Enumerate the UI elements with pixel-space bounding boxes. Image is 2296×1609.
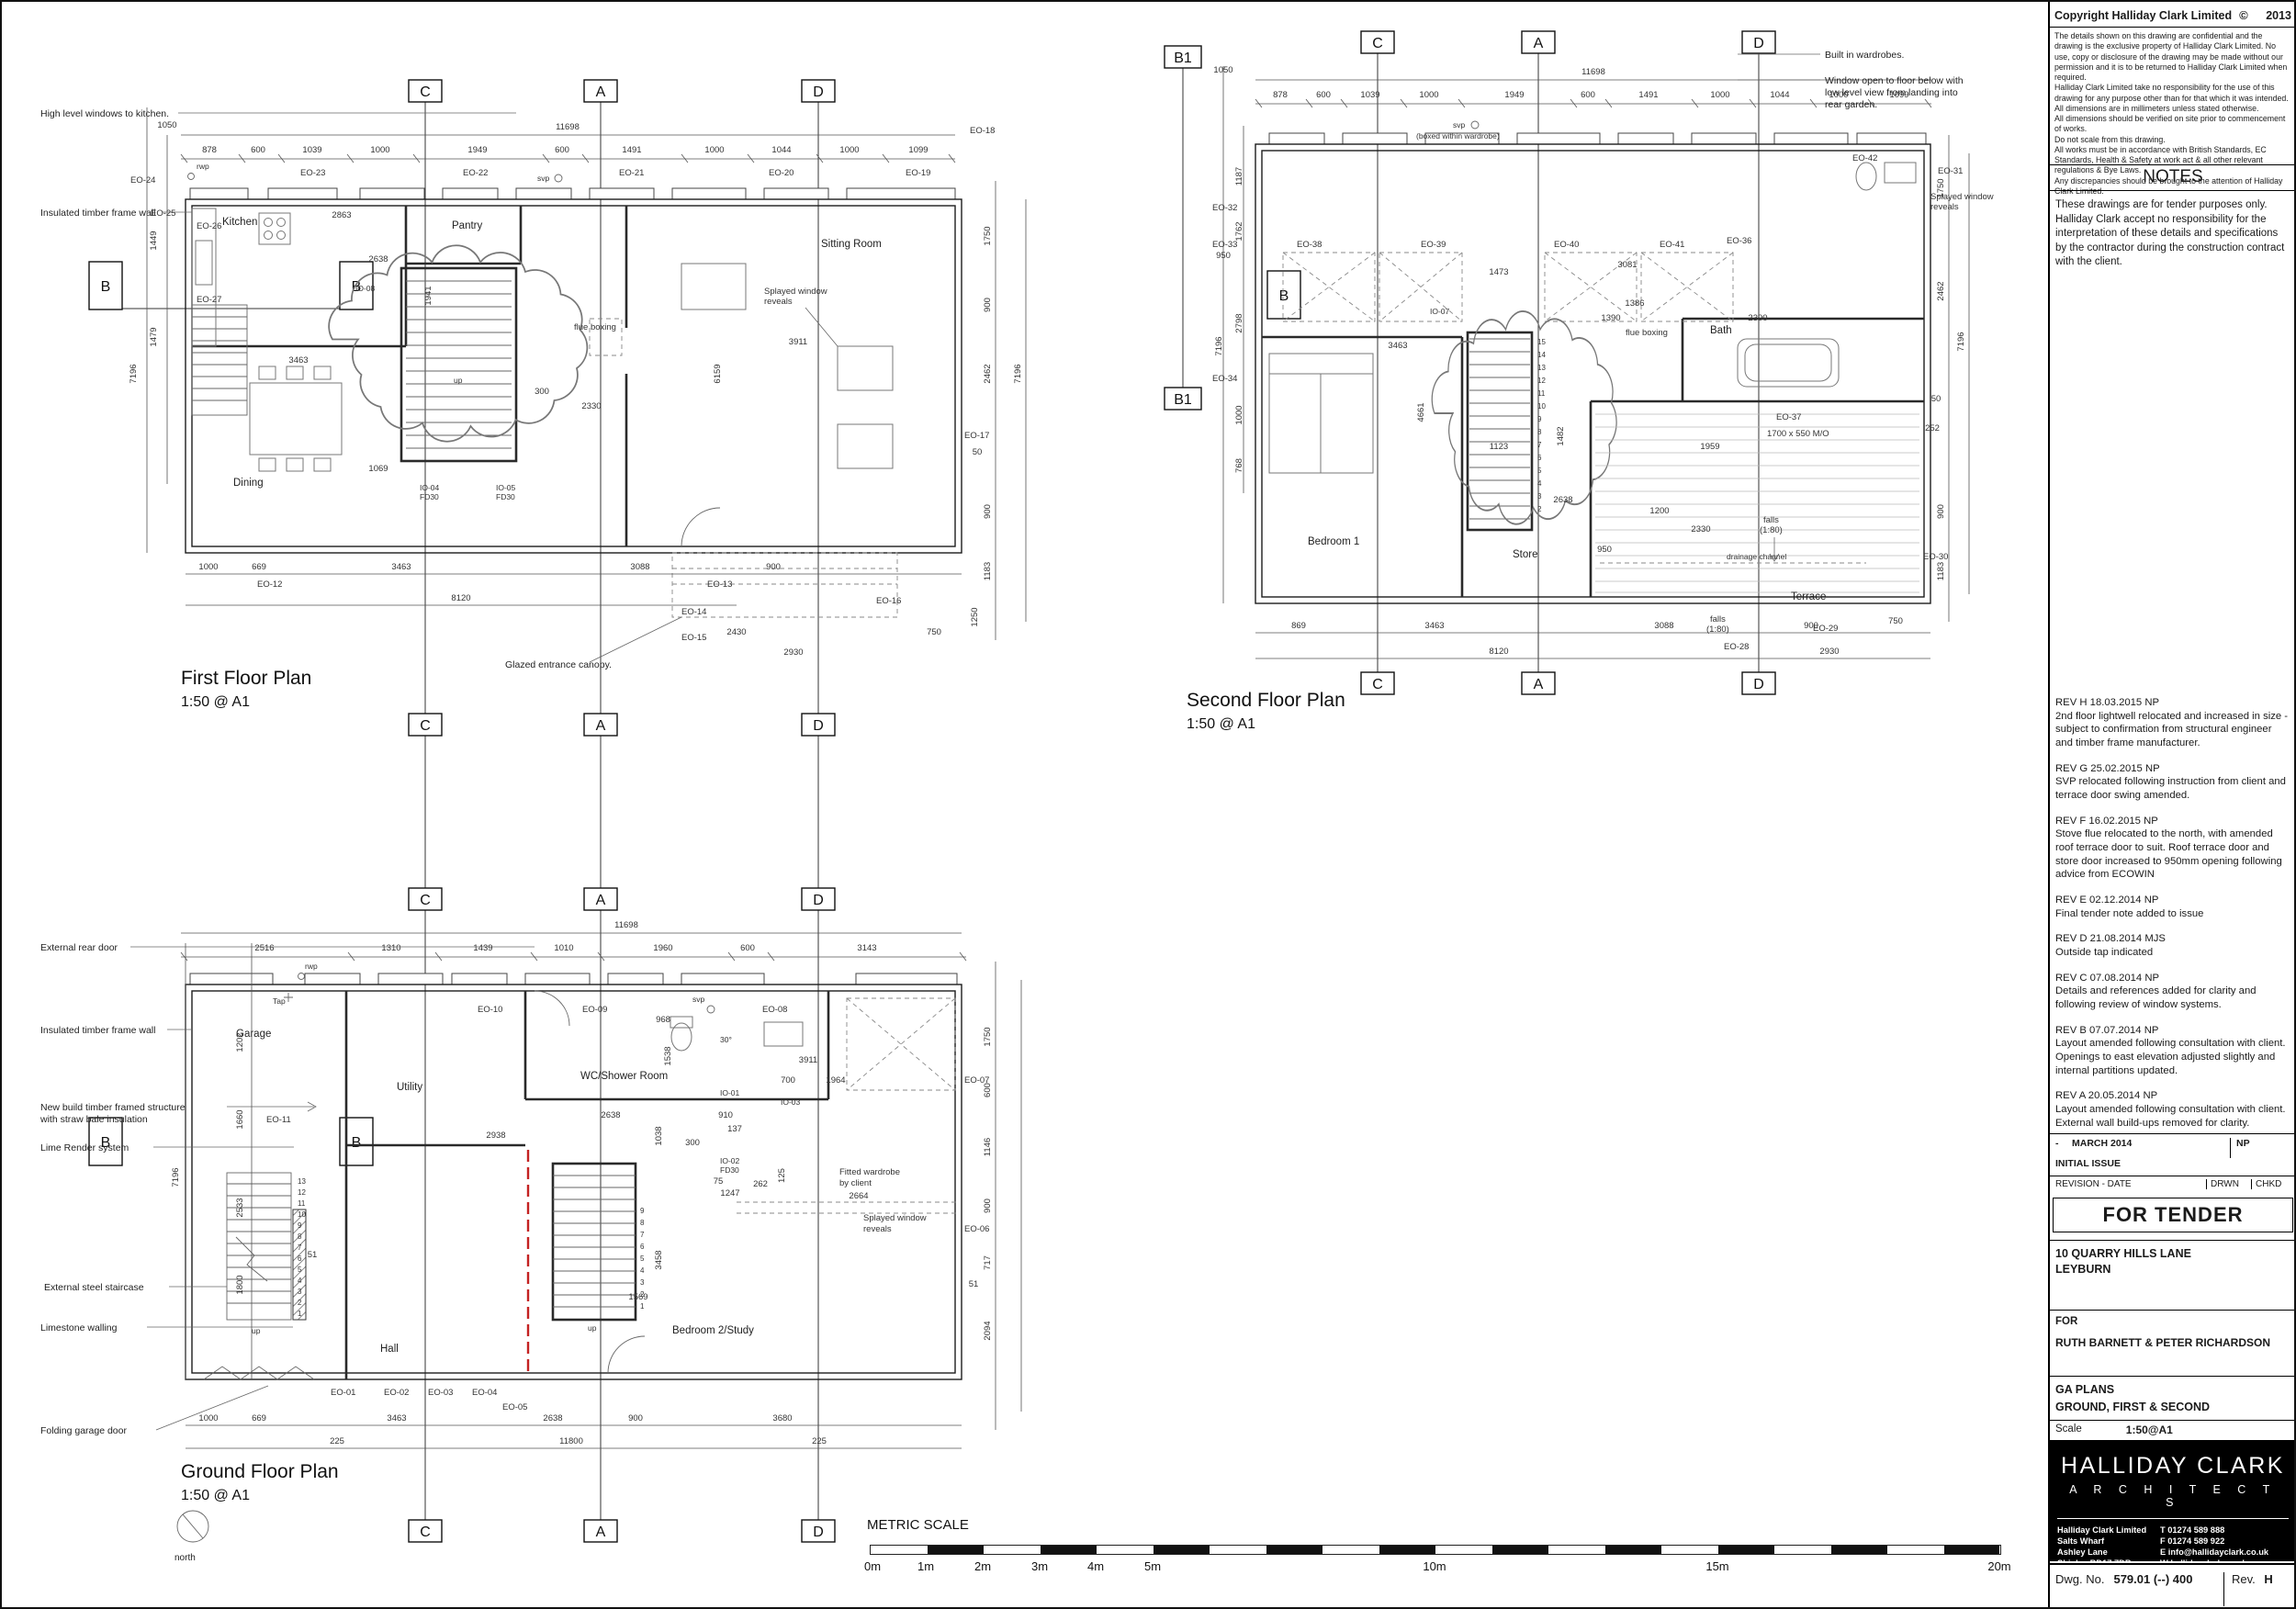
window-ref: EO-04 (472, 1388, 497, 1398)
rwp-label: rwp (197, 162, 209, 171)
stair-number: 3 (298, 1288, 302, 1296)
dim-label: 50 (1931, 394, 1941, 404)
note-flue: flue boxing (1626, 328, 1668, 338)
address-line: Halliday Clark Limited (2057, 1525, 2160, 1536)
dimensions-inner: 3463 2863 2638 1069 300 2330 3911 6159 1… (288, 210, 807, 474)
dimensions-left: 1187 1762 2798 1000 768 7196 EO-32 EO-33… (1212, 66, 1244, 603)
note-splayed: reveals (1930, 202, 1959, 212)
window-ref: EO-11 (266, 1115, 291, 1125)
dim-label: 1482 (1556, 426, 1566, 445)
room-sitting: Sitting Room (821, 239, 882, 250)
dim-label: 1959 (1700, 442, 1719, 452)
dim-label: 1538 (663, 1046, 673, 1065)
marker-d: D (1753, 677, 1764, 692)
note-structure: New build timber framed structure (40, 1102, 186, 1113)
window-ref: EO-16 (876, 596, 901, 606)
stair-number: 11 (298, 1199, 306, 1208)
window-ref: EO-37 (1776, 412, 1801, 422)
door-ref: IO-04 (420, 483, 440, 492)
marker-a: A (596, 893, 606, 908)
note-wardrobes: Built in wardrobes. (1825, 50, 1904, 61)
dim-label: 2930 (783, 647, 803, 658)
scale-label: 5m (1144, 1559, 1161, 1573)
revision-entry: REV B 07.07.2014 NP Layout amended follo… (2055, 1024, 2290, 1078)
issue-table: - MARCH 2014 NP INITIAL ISSUE REVISION -… (2050, 1133, 2296, 1194)
notes-heading: NOTES (2050, 167, 2296, 191)
drawing-sheet: C A D C A D B B 1050 11698 878 600 1039 … (0, 0, 2296, 1609)
dim-label: 968 (656, 1015, 670, 1025)
dim-label: 600 (1581, 90, 1595, 100)
window-ref: EO-36 (1727, 236, 1751, 246)
dim-label: 225 (812, 1436, 827, 1446)
marker-a: A (596, 84, 606, 100)
dim-label: 900 (766, 562, 781, 572)
revision-entry: REV E 02.12.2014 NP Final tender note ad… (2055, 894, 2290, 920)
scale-label: 15m (1705, 1559, 1728, 1573)
dim-label: 1386 (1625, 298, 1644, 309)
scale-row: Scale 1:50@A1 (2050, 1420, 2296, 1436)
up-label: up (454, 376, 463, 385)
stair-number: 6 (298, 1255, 302, 1263)
stair-number: 7 (640, 1231, 645, 1239)
io-refs: IO-01 IO-02 FD30 IO-03 30° (720, 1035, 801, 1175)
window-ref: EO-18 (970, 126, 995, 136)
dim-label: 2516 (254, 943, 274, 953)
dim-label: 1941 (423, 286, 433, 305)
revision-text: Outside tap indicated (2055, 946, 2290, 960)
stair-number: 1 (298, 1310, 302, 1318)
room-kitchen: Kitchen (222, 217, 257, 228)
scale-bar (870, 1545, 2001, 1555)
annotations-left: External rear door Insulated timber fram… (39, 942, 715, 1436)
dim-label: 2094 (983, 1321, 993, 1340)
note-splayed: Splayed window (863, 1213, 927, 1223)
dim-label: 1949 (1504, 90, 1524, 100)
revision-cloud (329, 245, 587, 441)
marker-a: A (596, 1525, 606, 1540)
dim-label: 950 (1216, 251, 1231, 261)
window-ref: EO-25 (151, 208, 175, 219)
stair-number: 5 (1537, 467, 1542, 475)
dim-label: 252 (1925, 423, 1940, 433)
marker-a: A (1534, 677, 1544, 692)
dim-label: 225 (330, 1436, 344, 1446)
section-lines (122, 102, 818, 842)
dim-label: 51 (308, 1250, 318, 1260)
dim-label: 750 (927, 627, 941, 637)
title-block: Copyright Halliday Clark Limited © 2013 … (2048, 2, 2296, 1609)
col-chkd: CHKD (2251, 1179, 2290, 1189)
dim-label: 51 (969, 1279, 979, 1289)
revision-entry: REV H 18.03.2015 NP 2nd floor lightwell … (2055, 696, 2290, 750)
dim-label: 2430 (726, 627, 746, 637)
dim-label: 717 (983, 1255, 993, 1270)
revision-label: REV D 21.08.2014 MJS (2055, 932, 2290, 946)
stair-number: 6 (640, 1243, 645, 1251)
stair-number: 4 (1537, 479, 1542, 488)
dim-label: 3463 (288, 355, 308, 366)
dim-label: 1000 (704, 145, 724, 155)
window-ref: EO-12 (257, 579, 282, 590)
dim-label: 3458 (654, 1250, 664, 1269)
dwg-no-value: 579.01 (--) 400 (2113, 1572, 2192, 1586)
stair-number: 6 (1537, 454, 1542, 462)
window-ref: EO-31 (1938, 166, 1963, 176)
room-terrace: Terrace (1791, 591, 1826, 602)
note-splayed: reveals (863, 1224, 892, 1234)
issue-dash: - (2055, 1138, 2072, 1158)
dim-label: 3463 (391, 562, 411, 572)
marker-b1: B1 (1174, 51, 1192, 66)
copyright-paragraph: All dimensions should be verified on sit… (2054, 114, 2291, 135)
plan-scale-ground: 1:50 @ A1 (181, 1488, 250, 1503)
svp-label: svp (692, 995, 705, 1004)
dim-label: 768 (1234, 458, 1244, 473)
dim-label: 11698 (1581, 67, 1605, 77)
note-falls: falls (1763, 515, 1779, 525)
walls (186, 199, 962, 617)
window-ref: EO-30 (1923, 552, 1948, 562)
stair-number: 9 (640, 1207, 645, 1215)
dim-label: 2938 (486, 1131, 505, 1141)
windows-top (190, 973, 957, 985)
project-line1: 10 QUARRY HILLS LANE (2055, 1246, 2290, 1262)
dim-label: 1044 (771, 145, 791, 155)
revision-label: REV E 02.12.2014 NP (2055, 894, 2290, 907)
dim-label: 1439 (473, 943, 492, 953)
note-garage-door: Folding garage door (40, 1425, 127, 1436)
stair-number: 11 (1537, 389, 1546, 398)
dim-label: 1762 (1234, 221, 1244, 241)
room-labels: Garage Utility WC/Shower Room Hall Bedro… (236, 1029, 927, 1355)
room-hall: Hall (380, 1344, 399, 1355)
revision-history: REV H 18.03.2015 NP 2nd floor lightwell … (2050, 696, 2296, 1142)
stair-number: 4 (640, 1266, 645, 1275)
plan-title-first: First Floor Plan (181, 668, 311, 689)
note-falls: (1:80) (1760, 525, 1783, 535)
dim-label: 1069 (368, 464, 388, 474)
dim-label: 4661 (1416, 402, 1426, 422)
dwg-no-label: Dwg. No. (2050, 1572, 2104, 1586)
dim-label: 2300 (1748, 313, 1767, 323)
window-ref: EO-32 (1212, 203, 1237, 213)
scale-label: Scale (2055, 1423, 2082, 1434)
dimensions-bottom: 1000 669 3463 3088 900 8120 2430 2930 EO… (186, 562, 962, 658)
section-markers: C A D C A D B B (89, 888, 835, 1542)
room-labels: Kitchen Pantry Sitting Room Dining (222, 217, 882, 489)
windows-top (1269, 133, 1926, 144)
for-label: FOR (2055, 1316, 2290, 1327)
window-ref: EO-42 (1852, 153, 1877, 163)
stair-number: 10 (1537, 402, 1546, 411)
dim-label: 900 (1936, 504, 1946, 519)
note-window: Window open to floor below with (1825, 75, 1964, 86)
note-splayed: Splayed window (764, 287, 827, 297)
note-structure: with straw bale insulation (39, 1114, 148, 1125)
dim-label: 1010 (554, 943, 573, 953)
copyright-title: Copyright Halliday Clark Limited (2054, 9, 2232, 22)
address-line: Ashley Lane (2057, 1547, 2160, 1558)
dim-label: 50 (973, 447, 983, 457)
marker-b1: B1 (1174, 392, 1192, 408)
revision-label: REV G 25.02.2015 NP (2055, 762, 2290, 776)
dim-label: 2863 (332, 210, 351, 220)
dim-label: 1000 (198, 562, 218, 572)
copyright-paragraph: Halliday Clark Limited take no responsib… (2054, 83, 2291, 104)
dim-label: 2930 (1819, 647, 1839, 657)
room-dining: Dining (233, 478, 264, 489)
dim-label: 1123 (1490, 442, 1508, 452)
marker-d: D (1753, 36, 1764, 51)
dim-label: 2638 (1553, 495, 1572, 505)
stair-number: 9 (298, 1221, 302, 1230)
client-name: RUTH BARNETT & PETER RICHARDSON (2055, 1336, 2290, 1349)
dim-label: 7196 (1013, 364, 1023, 383)
dim-label: 1000 (1710, 90, 1729, 100)
scale-label: 2m (974, 1559, 991, 1573)
dim-label: 910 (718, 1110, 733, 1120)
dim-label: 1750 (983, 1027, 993, 1046)
contact-line: F 01274 589 922 (2160, 1536, 2268, 1547)
dim-label: 1250 (970, 607, 980, 626)
window-ref: EO-13 (707, 579, 732, 590)
dim-label: 900 (1804, 621, 1818, 631)
client-block: FOR RUTH BARNETT & PETER RICHARDSON (2050, 1310, 2296, 1365)
dim-label: 125 (777, 1168, 787, 1183)
note-drainage: drainage channel (1727, 552, 1786, 561)
stair-number: 2 (298, 1299, 302, 1307)
scale-value: 1:50@A1 (2126, 1423, 2173, 1434)
dimensions-left: 1449 1479 7196 EO-24 EO-25 EO-26 EO-27 (129, 107, 221, 553)
plan-title-second: Second Floor Plan (1187, 690, 1345, 711)
stairs-internal: 9 8 7 6 5 4 3 2 1 up (553, 1176, 645, 1333)
dim-label: 1183 (983, 562, 993, 580)
dim-label: 1964 (826, 1075, 845, 1086)
dim-label: 1750 (983, 226, 993, 245)
svp-label: svp (1453, 120, 1466, 129)
window-ref: EO-01 (331, 1388, 355, 1398)
marker-c: C (420, 718, 431, 734)
marker-c: C (420, 84, 431, 100)
note-canopy: Glazed entrance canopy. (505, 659, 612, 670)
note-wardrobe: Fitted wardrobe (839, 1167, 900, 1177)
plan-scale-second: 1:50 @ A1 (1187, 716, 1255, 732)
dim-label: 2533 (235, 1198, 245, 1217)
dim-label: 1050 (157, 120, 176, 130)
col-drwn: DRWN (2206, 1179, 2247, 1189)
dim-label: 2638 (601, 1110, 620, 1120)
dim-label: 1491 (1638, 90, 1658, 100)
room-bedroom1: Bedroom 1 (1308, 536, 1359, 547)
scale-label: 20m (1987, 1559, 2010, 1573)
dim-label: 750 (1888, 616, 1903, 626)
marker-a: A (596, 718, 606, 734)
dim-label: 8120 (1489, 647, 1508, 657)
dim-label: 3463 (1388, 341, 1407, 351)
second-floor-plan: B1 B1 C A D C A D B 1050 11698 878 600 1… (1131, 16, 2059, 750)
scale-label: 3m (1031, 1559, 1048, 1573)
drawing-title1: GA PLANS (2055, 1381, 2290, 1399)
revision-text: SVP relocated following instruction from… (2055, 775, 2290, 802)
dimensions-right: 1750 900 2462 7196 50 900 1183 1250 750 … (927, 126, 1026, 640)
note-mo: 1700 x 550 M/O (1767, 429, 1829, 439)
dim-label: 1473 (1489, 267, 1508, 277)
dim-label: 3088 (630, 562, 649, 572)
window-ref: EO-15 (681, 633, 706, 643)
marker-c: C (420, 1525, 431, 1540)
dim-label: 878 (202, 145, 217, 155)
copyright-body: The details shown on this drawing are co… (2050, 29, 2296, 165)
dim-label: 878 (1273, 90, 1288, 100)
revision-label: REV C 07.08.2014 NP (2055, 972, 2290, 985)
dim-label: 1044 (1770, 90, 1789, 100)
section-markers: C A D C A D B B (89, 80, 835, 736)
fixtures (670, 1017, 803, 1051)
dim-label: 1000 (198, 1413, 218, 1423)
plan-title-ground: Ground Floor Plan (181, 1461, 339, 1482)
window-ref: EO-09 (582, 1005, 607, 1015)
window-ref: EO-39 (1421, 240, 1446, 250)
revision-entry: REV G 25.02.2015 NP SVP relocated follow… (2055, 762, 2290, 803)
dim-label: 3081 (1617, 260, 1637, 270)
dim-label: 1960 (653, 943, 672, 953)
door-ref: IO-03 (781, 1097, 801, 1107)
dim-label: 669 (252, 1413, 266, 1423)
dim-label: 3680 (772, 1413, 792, 1423)
room-bedroom2: Bedroom 2/Study (672, 1325, 754, 1336)
note-falls: falls (1710, 614, 1726, 624)
note-high-windows: High level windows to kitchen. (40, 108, 169, 119)
issue-drawn: NP (2230, 1138, 2290, 1158)
window-ref: EO-17 (964, 431, 989, 441)
window-ref: EO-33 (1212, 240, 1237, 250)
stair-number: 5 (640, 1255, 645, 1263)
door-ref: FD30 (420, 492, 439, 501)
dim-label: 1200 (1649, 506, 1669, 516)
notes-body: These drawings are for tender purposes o… (2050, 195, 2296, 274)
rwp-label: rwp (305, 962, 318, 971)
note-ext-staircase: External steel staircase (44, 1282, 144, 1293)
note-rear-door: External rear door (40, 942, 118, 953)
window-ref: EO-20 (769, 168, 793, 178)
up-label: up (588, 1323, 597, 1333)
up-label: up (252, 1326, 261, 1335)
window-ref: EO-07 (964, 1075, 989, 1086)
stair-number: 1 (640, 1302, 645, 1311)
angle-label: 30° (720, 1035, 732, 1044)
revision-text: Layout amended following consultation wi… (2055, 1037, 2290, 1077)
logo-name: HALLIDAY CLARK (2057, 1453, 2289, 1480)
metric-scale-title: METRIC SCALE (867, 1517, 969, 1533)
rev-value: H (2264, 1572, 2272, 1586)
door-ref: FD30 (496, 492, 515, 501)
window-ref: EO-21 (619, 168, 644, 178)
dim-label: 3911 (799, 1055, 817, 1065)
stair-number: 4 (298, 1277, 302, 1285)
dim-label: 2798 (1234, 313, 1244, 332)
window-ref: EO-02 (384, 1388, 409, 1398)
door-ref: IO-05 (496, 483, 516, 492)
project-address: 10 QUARRY HILLS LANE LEYBURN (2050, 1240, 2296, 1299)
window-ref: EO-34 (1212, 374, 1237, 384)
project-line2: LEYBURN (2055, 1262, 2290, 1277)
north-label: north (174, 1553, 196, 1563)
dim-label: 1202 (235, 1032, 245, 1052)
scale-label: 4m (1087, 1559, 1104, 1573)
stair-number: 2 (1537, 505, 1542, 513)
revision-text: Layout amended following consultation wi… (2055, 1103, 2290, 1130)
note-splayed: reveals (764, 297, 793, 307)
dim-label: 8120 (451, 593, 470, 603)
room-bath: Bath (1710, 325, 1732, 336)
dim-label: 1660 (235, 1109, 245, 1129)
stair-number: 13 (298, 1177, 306, 1186)
dim-label: 900 (983, 298, 993, 312)
dim-label: 1000 (1419, 90, 1438, 100)
revision-label: REV H 18.03.2015 NP (2055, 696, 2290, 710)
dim-label: 3143 (857, 943, 876, 953)
revision-entry: REV F 16.02.2015 NP Stove flue relocated… (2055, 815, 2290, 882)
dim-label: 1491 (622, 145, 641, 155)
dim-label: 300 (535, 387, 549, 397)
dim-label: 7196 (1214, 336, 1224, 355)
dim-label: 1146 (983, 1138, 993, 1156)
revision-label: REV A 20.05.2014 NP (2055, 1089, 2290, 1103)
dim-label: 1449 (149, 231, 159, 250)
dim-label: 137 (727, 1124, 742, 1134)
dim-label: 950 (1597, 545, 1612, 555)
dim-label: 7196 (1956, 332, 1966, 351)
dim-label: 1390 (1601, 313, 1620, 323)
wardrobes: EO-38 EO-39 EO-40 EO-41 EO-42 (1283, 153, 1877, 321)
dim-label: 900 (983, 504, 993, 519)
dim-label: 1247 (720, 1188, 739, 1198)
rev-cell: Rev. H (2223, 1572, 2296, 1606)
plan-scale-first: 1:50 @ A1 (181, 694, 250, 710)
dim-label: 1800 (235, 1275, 245, 1294)
dim-label: 1187 (1234, 167, 1244, 186)
dim-label: 1183 (1936, 562, 1946, 580)
dim-label: 1099 (908, 145, 928, 155)
stair-number: 8 (640, 1219, 645, 1227)
marker-b: B (101, 279, 111, 295)
dimensions-top: 11698 2516 1310 1439 1010 1960 600 3143 … (181, 920, 966, 1015)
dim-label: 869 (1291, 621, 1306, 631)
stair-number: 14 (1537, 351, 1546, 359)
dim-label: 600 (740, 943, 755, 953)
issue-date: MARCH 2014 (2072, 1138, 2132, 1158)
stair-number: 7 (1537, 441, 1542, 449)
first-floor-plan: C A D C A D B B 1050 11698 878 600 1039 … (39, 71, 1109, 842)
stair-number: 3 (640, 1278, 645, 1287)
marker-d: D (813, 1525, 824, 1540)
scale-label: 10m (1423, 1559, 1446, 1573)
dim-label: 700 (781, 1075, 795, 1086)
window-ref: EO-08 (762, 1005, 787, 1015)
revision-cloud (1432, 311, 1616, 524)
dim-label: 600 (251, 145, 265, 155)
window-ref: EO-27 (197, 295, 221, 305)
window-ref: EO-05 (502, 1402, 527, 1412)
door-ref: FD30 (720, 1165, 739, 1175)
dim-label: 1039 (302, 145, 321, 155)
copyright-paragraph: The details shown on this drawing are co… (2054, 31, 2291, 83)
stair-number: 13 (1537, 364, 1546, 372)
stair-number: 12 (1537, 377, 1546, 385)
revision-entry: REV C 07.08.2014 NP Details and referenc… (2055, 972, 2290, 1012)
dim-label: 900 (628, 1413, 643, 1423)
dimensions-bottom: EO-01 EO-02 EO-03 EO-04 EO-05 1000 669 3… (186, 1388, 962, 1448)
